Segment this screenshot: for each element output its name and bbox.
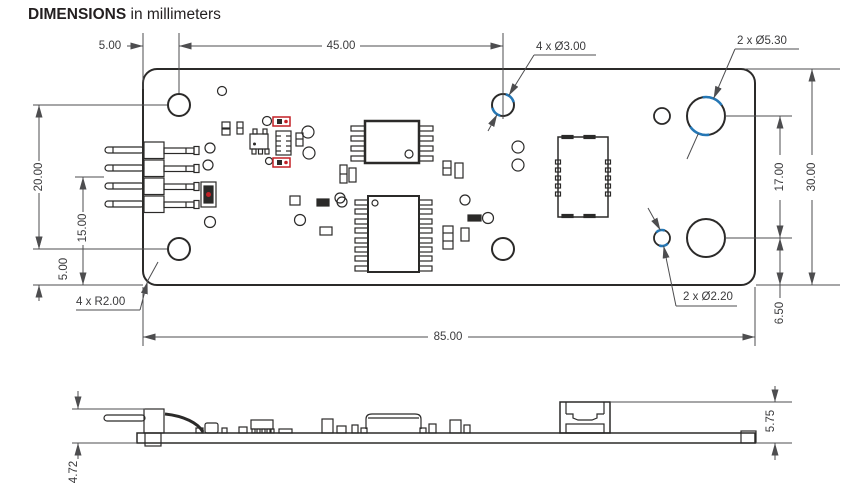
- dim-pin-protrusion: 4.72: [68, 391, 80, 483]
- title-bold: DIMENSIONS: [28, 6, 126, 23]
- dim-lower-left-label: 5.00: [58, 258, 70, 280]
- small-holes: [654, 108, 670, 246]
- via-holes: [203, 87, 524, 228]
- soic8-ic: [351, 121, 433, 163]
- soic16-ic: [355, 196, 432, 272]
- small-ic-package: [276, 131, 291, 155]
- pcb-top-view: [105, 69, 755, 285]
- dim-pin-protrusion-label: 4.72: [68, 461, 80, 483]
- side-pin-header: [104, 409, 203, 446]
- dim-component-height-label: 5.75: [765, 410, 777, 432]
- dim-board-width: 85.00: [143, 331, 755, 343]
- side-usb-connector: [560, 402, 610, 433]
- header-pins-right: [164, 147, 199, 209]
- dimension-drawing: DIMENSIONS in millimeters: [0, 0, 847, 497]
- dim-board-height: 30.00: [806, 69, 818, 285]
- dim-component-height: 5.75: [765, 386, 777, 460]
- pin-header: [105, 142, 199, 213]
- dim-left-offset-label: 5.00: [99, 40, 121, 52]
- dim-hole-span: 45.00: [179, 40, 503, 52]
- side-view-dimensions: 5.75 4.72: [68, 386, 792, 483]
- diode-package: [201, 182, 216, 207]
- pcb-drawing-svg: 5.00 45.00 20.00 5.00: [0, 0, 847, 497]
- side-board: [137, 433, 755, 443]
- dim-upper-left-label: 20.00: [33, 163, 45, 192]
- header-pins-left: [105, 147, 144, 207]
- drawing-title: DIMENSIONS in millimeters: [28, 6, 221, 24]
- dim-header-bottom: 15.00: [77, 177, 89, 285]
- dim-lower-left: 5.00: [39, 233, 70, 301]
- callout-corner-radius-label: 4 x R2.00: [76, 296, 125, 308]
- callout-mounting-holes-label: 4 x Ø3.00: [536, 41, 586, 53]
- callout-small-holes-label: 2 x Ø2.20: [683, 291, 733, 303]
- board-outline: [143, 69, 755, 285]
- mounting-holes: [168, 94, 514, 260]
- dim-left-offset: 5.00: [99, 40, 143, 52]
- dim-upper-left: 20.00: [33, 105, 45, 249]
- dim-board-width-label: 85.00: [434, 331, 463, 343]
- dim-board-height-label: 30.00: [806, 163, 818, 192]
- module-footprint: [556, 136, 611, 218]
- dim-right-bottom: 6.50: [774, 238, 786, 324]
- dim-header-bottom-label: 15.00: [77, 214, 89, 243]
- sot23-package: [250, 129, 269, 154]
- top-view-dimensions: 5.00 45.00 20.00 5.00: [33, 33, 840, 346]
- dim-right-bottom-label: 6.50: [774, 302, 786, 324]
- dim-right-span-label: 17.00: [774, 163, 786, 192]
- callout-small-holes: 2 x Ø2.20: [648, 208, 737, 306]
- callout-corner-radius: 4 x R2.00: [76, 262, 158, 310]
- side-components: [196, 414, 470, 433]
- callout-large-holes-label: 2 x Ø5.30: [737, 35, 787, 47]
- large-holes: [687, 97, 725, 257]
- title-units: in millimeters: [126, 6, 221, 23]
- pcb-side-view: 5.75 4.72: [68, 386, 792, 483]
- callout-mounting-holes: 4 x Ø3.00: [488, 41, 596, 131]
- dim-hole-span-label: 45.00: [327, 40, 356, 52]
- dim-right-span: 17.00: [774, 116, 786, 238]
